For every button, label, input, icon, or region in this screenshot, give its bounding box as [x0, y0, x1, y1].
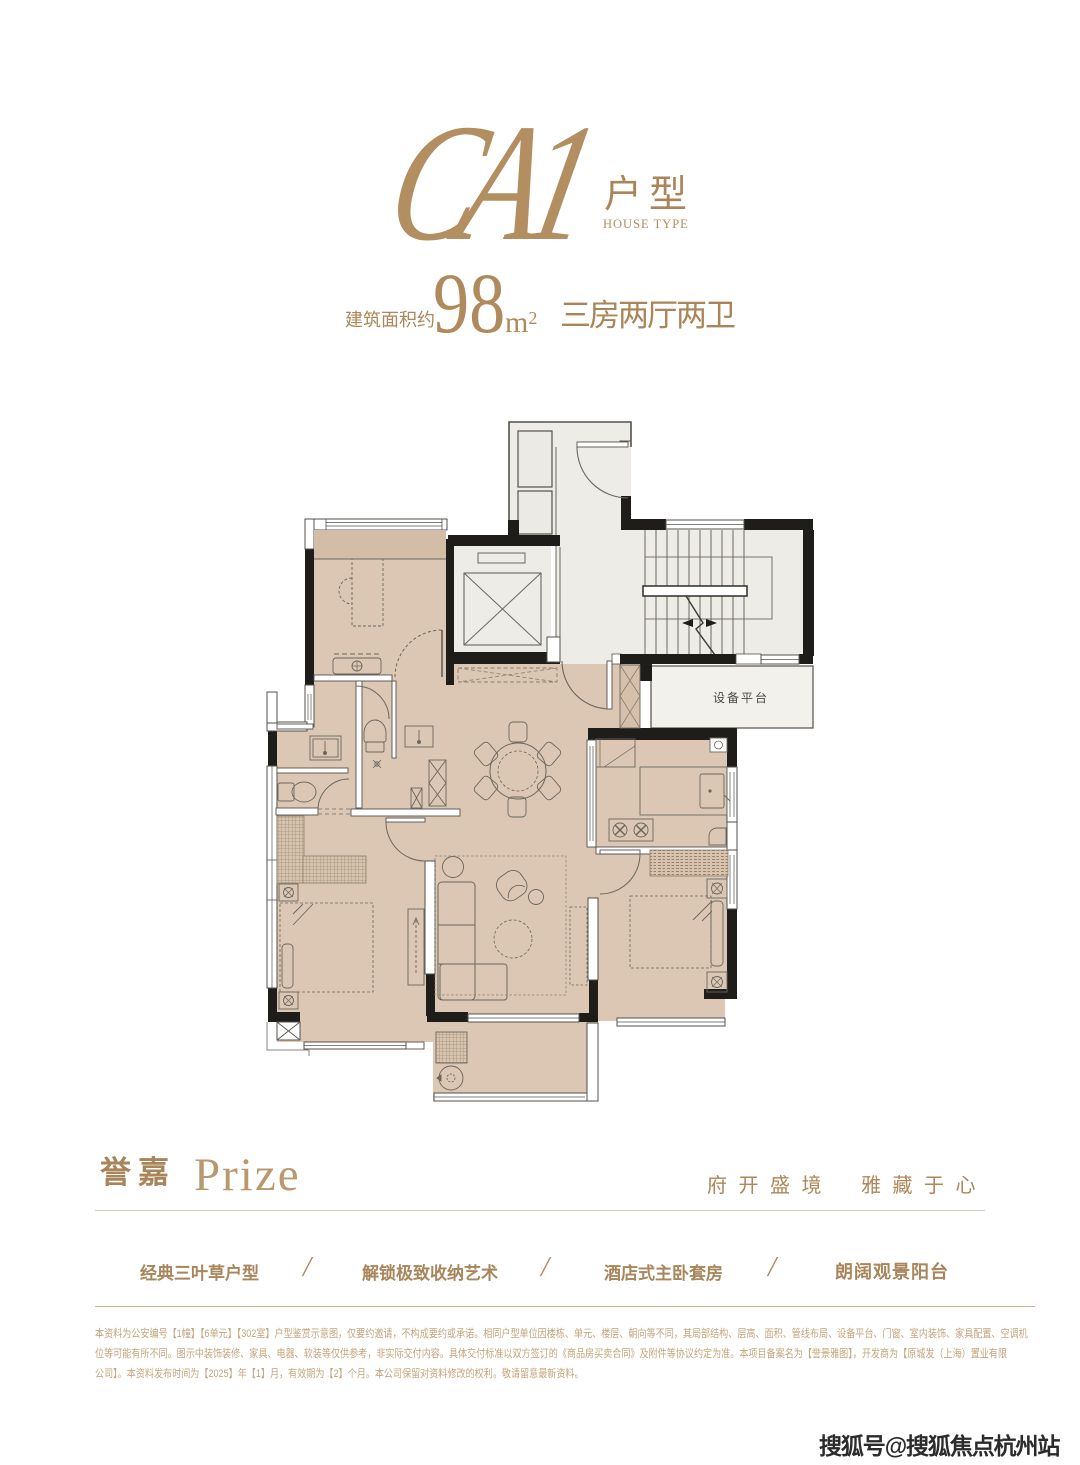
svg-text:设备平台: 设备平台 [713, 690, 769, 705]
